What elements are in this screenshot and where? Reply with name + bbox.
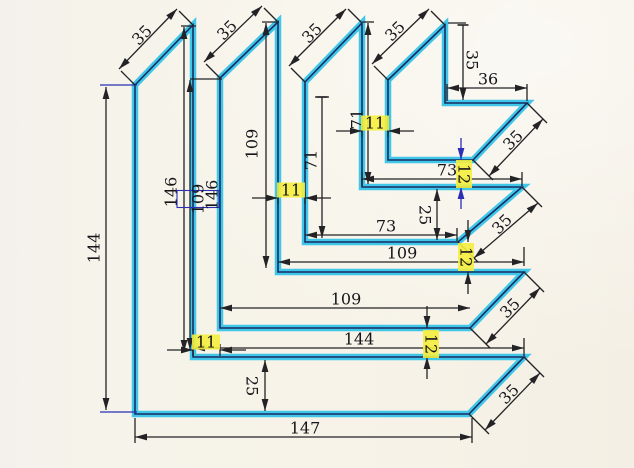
extension-line: [470, 328, 490, 348]
dimension-arrowhead: [434, 228, 441, 240]
extension-line: [264, 8, 278, 22]
dim-label-109: 109: [331, 290, 362, 309]
dimension-arrowhead: [447, 85, 459, 92]
dimension-arrowhead: [515, 85, 527, 92]
dimension-arrowhead: [319, 226, 326, 238]
dimension-arrowhead: [103, 398, 110, 410]
dim-label-12: 12: [455, 164, 474, 184]
dim-label-12: 12: [457, 247, 476, 267]
extension-line: [524, 272, 544, 292]
dim-label-35: 35: [128, 21, 156, 49]
dimension-arrowhead: [458, 305, 470, 312]
dimension-arrowhead: [460, 88, 467, 100]
dim-label-109: 109: [387, 244, 418, 263]
dimension-arrowhead: [365, 23, 372, 35]
dimension-arrowhead: [262, 399, 269, 411]
extension-line: [527, 103, 547, 123]
dim-label-11: 11: [196, 333, 216, 352]
dim-label-35: 35: [381, 17, 409, 45]
dim-label-146: 146: [162, 177, 181, 208]
dim-label-144: 144: [85, 233, 104, 264]
extension-line: [291, 68, 305, 82]
extension-line: [522, 187, 542, 207]
dim-label-73: 73: [376, 217, 396, 236]
dimension-arrowhead: [445, 232, 457, 239]
dimension-arrowhead: [135, 434, 147, 441]
dim-label-36: 36: [478, 70, 498, 89]
dim-label-25: 25: [243, 376, 262, 396]
extension-line: [348, 9, 362, 23]
paper-background: 1441461091461097171353673731091091441472…: [0, 0, 634, 468]
dim-label-147: 147: [290, 419, 321, 438]
dimension-arrowhead: [434, 189, 441, 201]
dim-label-35: 35: [213, 16, 241, 44]
dim-label-12: 12: [422, 334, 441, 354]
dim-label-71: 71: [302, 150, 321, 170]
dim-label-73: 73: [437, 161, 457, 180]
dimension-drawing: 1441461091461097171353673731091091441472…: [0, 0, 634, 468]
dim-label-35: 35: [463, 50, 482, 70]
extension-line: [374, 66, 388, 80]
dim-label-11: 11: [365, 114, 385, 133]
dim-label-144: 144: [344, 330, 375, 349]
extension-line: [179, 11, 193, 25]
extension-line: [206, 64, 220, 78]
dim-label-35: 35: [298, 19, 326, 47]
dimension-arrowhead: [512, 259, 524, 266]
dimension-arrowhead: [512, 345, 524, 352]
extension-line: [431, 11, 445, 25]
dimension-arrowhead: [263, 256, 270, 268]
dim-label-25: 25: [416, 205, 435, 225]
dimension-arrowhead: [510, 176, 522, 183]
extension-line: [121, 71, 135, 85]
dim-label-11: 11: [281, 181, 301, 200]
extension-line: [524, 357, 544, 377]
dim-label-109: 109: [243, 129, 262, 160]
extension-line: [473, 160, 493, 180]
dim-label-146: 146: [203, 180, 222, 211]
dimension-arrowhead: [262, 360, 269, 372]
dimension-arrowhead: [460, 434, 472, 441]
dimension-arrowhead: [103, 87, 110, 99]
